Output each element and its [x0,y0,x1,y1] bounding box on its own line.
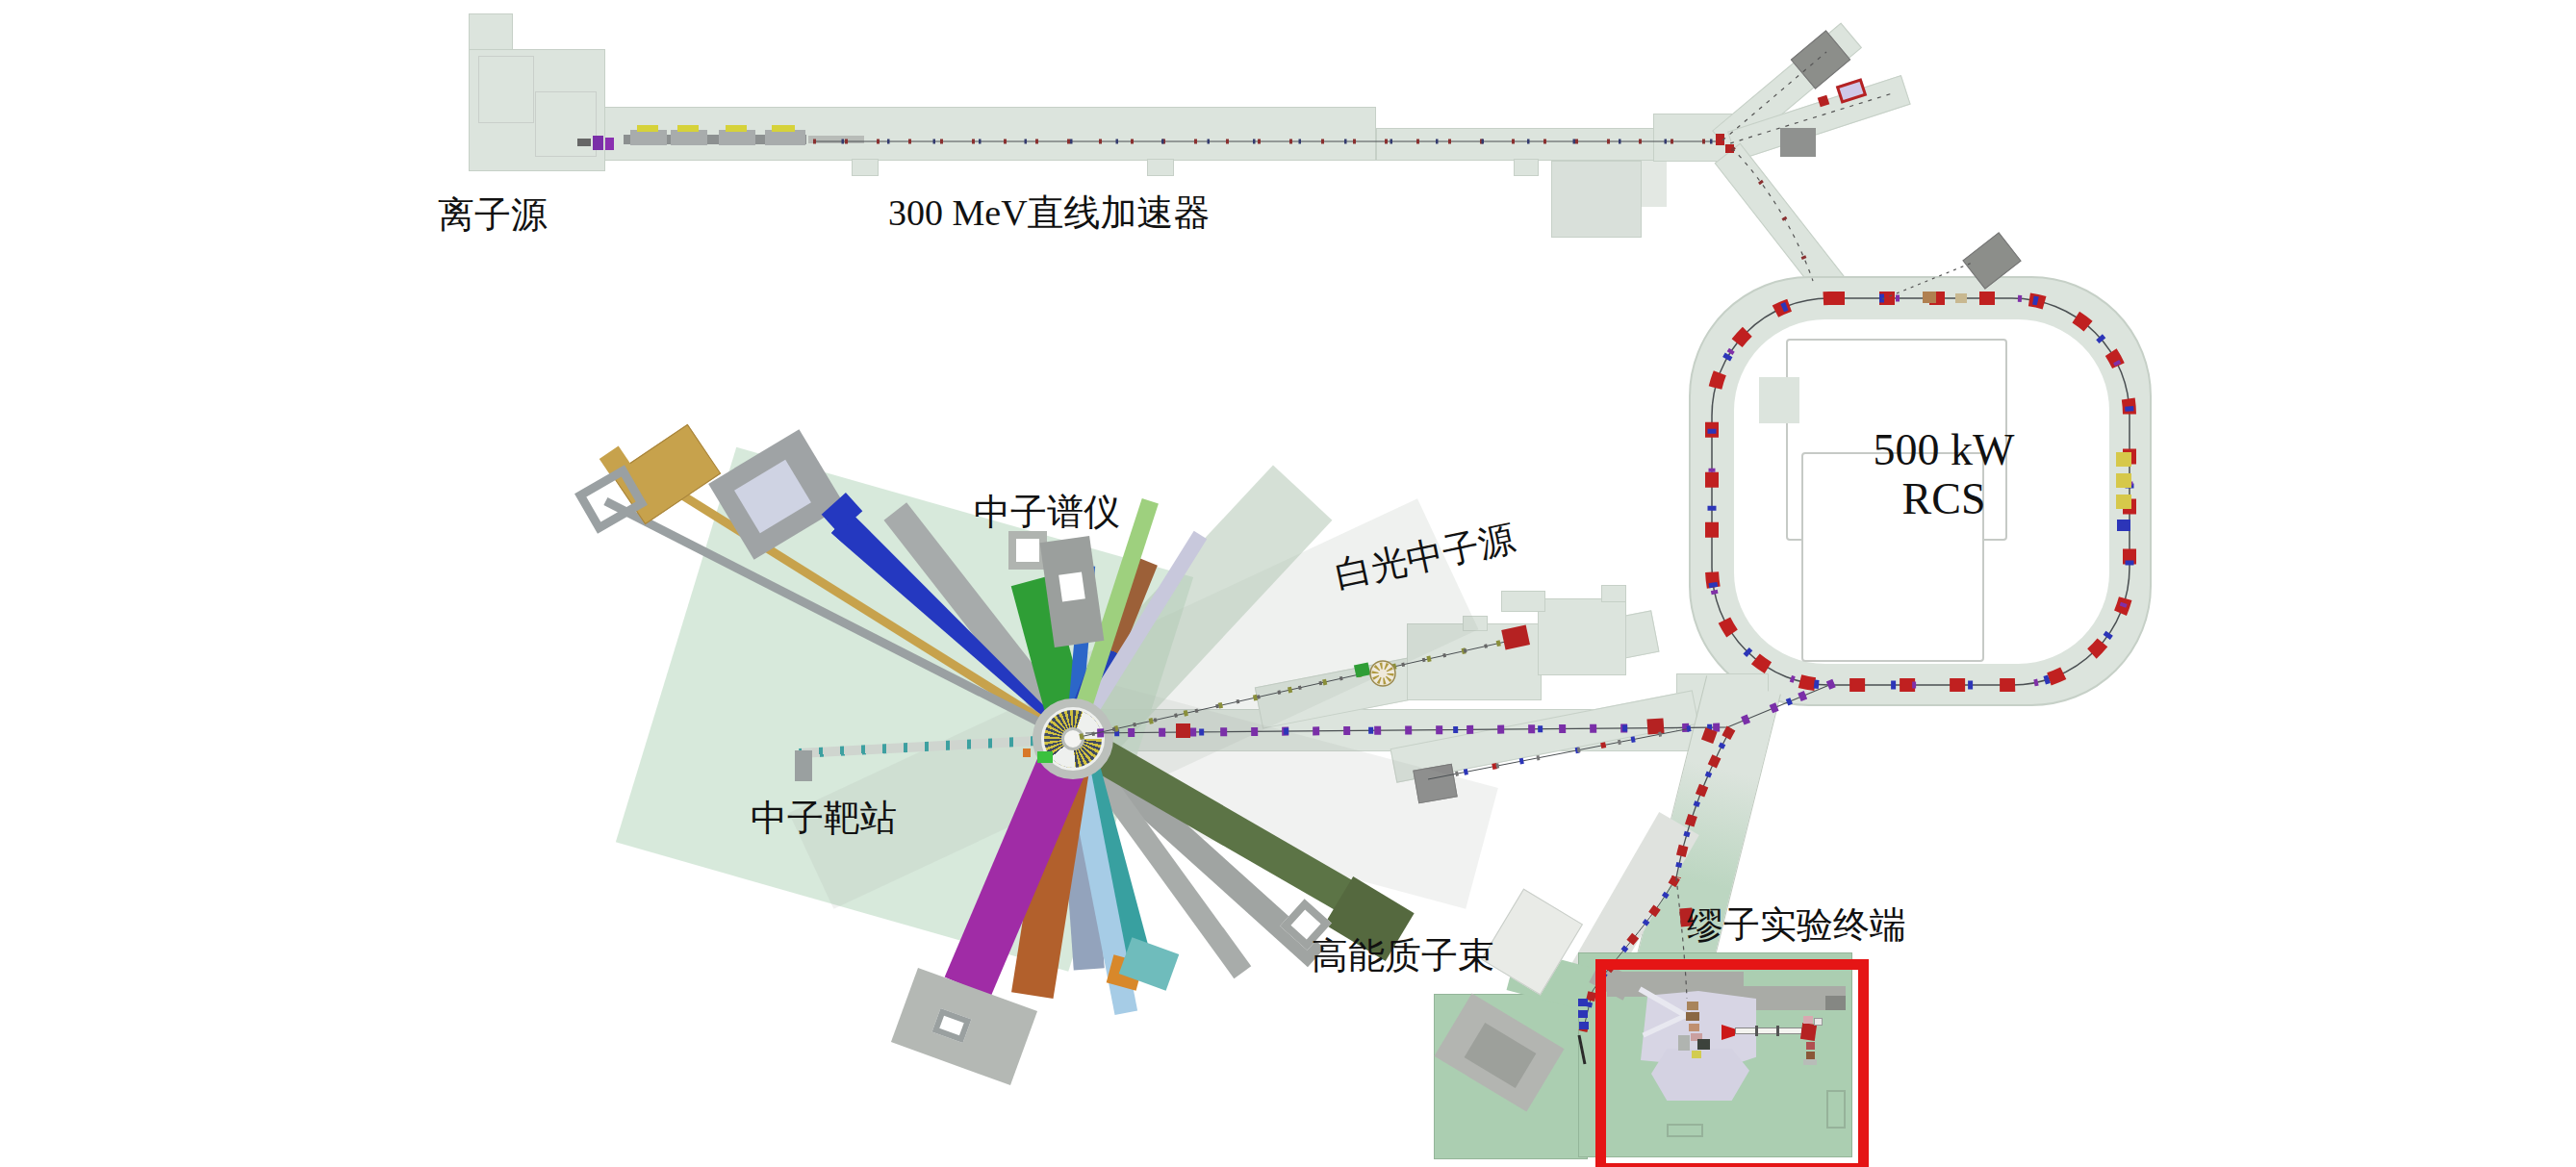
white-neutron-beamline [1080,625,1530,737]
linac-beamline [813,134,1734,153]
label-target-station: 中子靶站 [751,799,897,839]
label-rcs-power: 500 kW [1828,426,2059,475]
label-rcs-name: RCS [1828,475,2059,524]
rf-cavity-2 [2116,473,2131,488]
linac-fork-branches [1722,52,1896,281]
muon-terminal-highlight-box [1595,959,1869,1167]
rf-cavity-1 [2116,452,2131,467]
label-spectrometers: 中子谱仪 [974,493,1120,533]
facility-map: 离子源 300 MeV直线加速器 中子谱仪 白光中子源 中子靶站 500 kW … [0,0,2576,1167]
label-ion-source: 离子源 [438,195,548,236]
beamlines-layer [0,0,2576,1167]
rtbt-dump-beamline [1428,728,1691,779]
rf-cavity-3 [2116,495,2131,509]
hep-beam-terminator [1579,1035,1585,1064]
rtbt-beamline [1085,683,1834,744]
label-proton-beam: 高能质子束 [1312,936,1494,977]
label-linac: 300 MeV直线加速器 [888,193,1211,234]
label-muon-terminal: 缪子实验终端 [1687,905,1906,946]
wns-end-magnet [1501,625,1530,650]
label-rcs: 500 kW RCS [1828,426,2059,523]
